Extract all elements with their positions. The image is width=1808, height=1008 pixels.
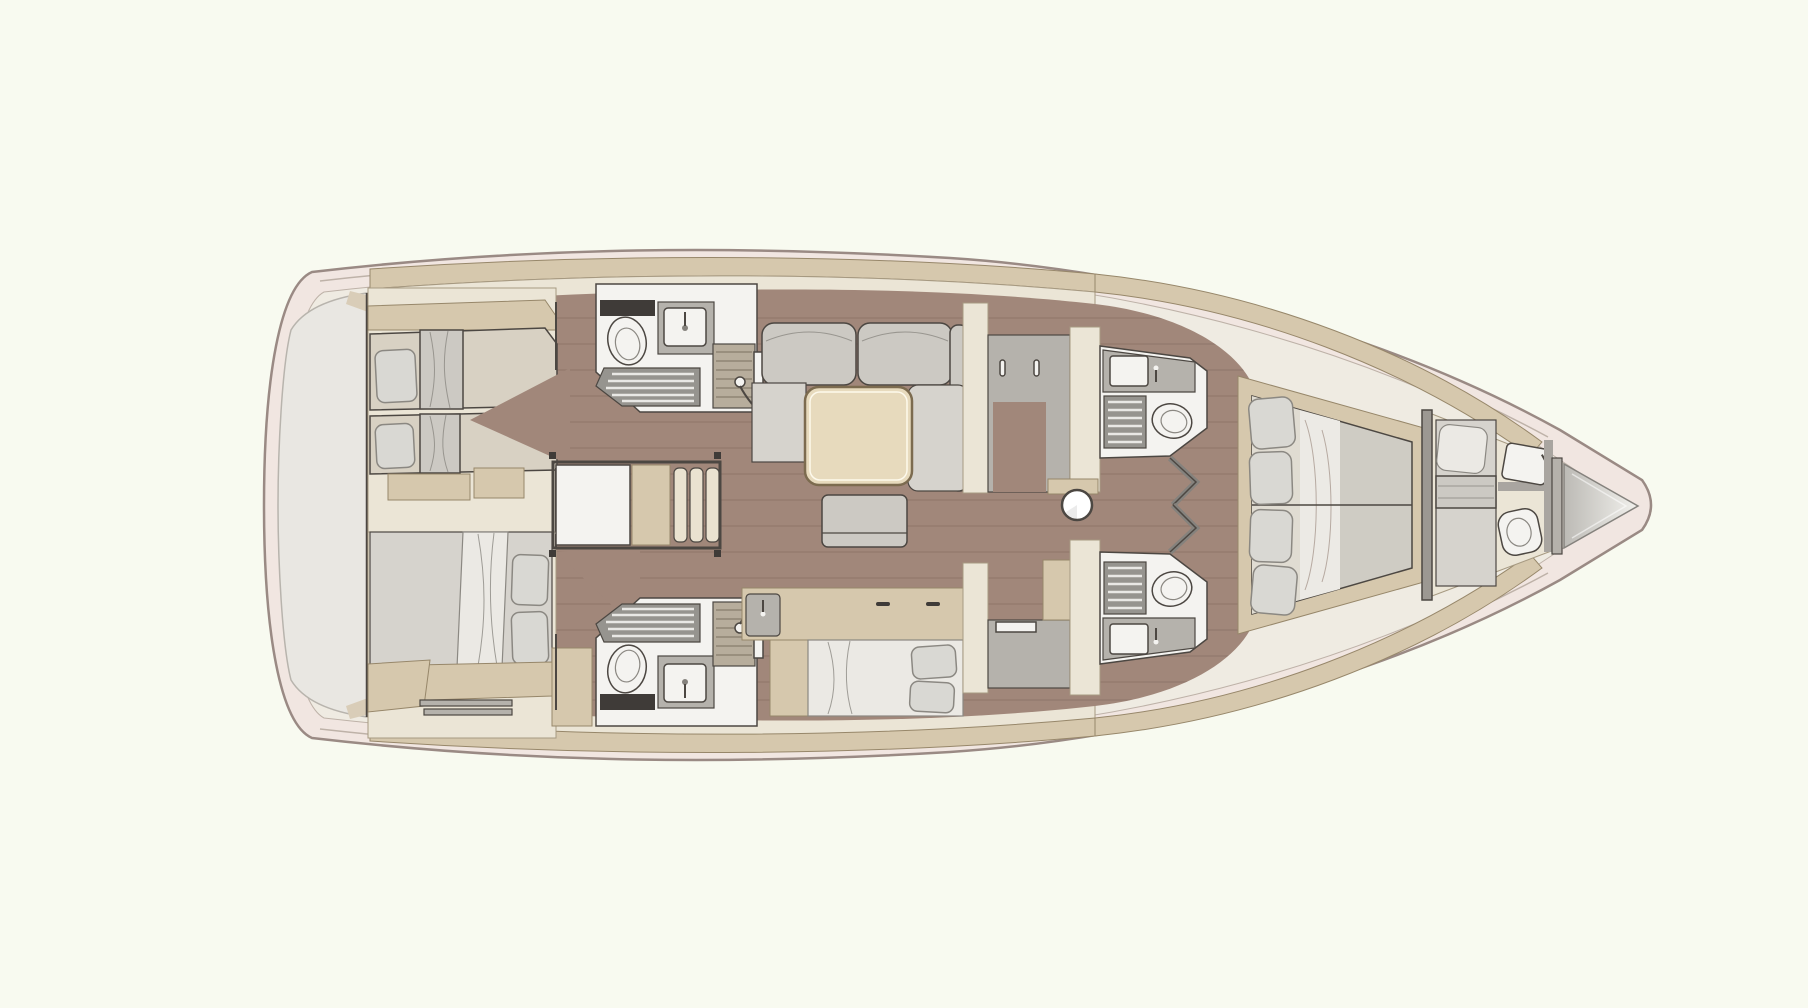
aft-head-port bbox=[596, 284, 757, 412]
step bbox=[690, 468, 703, 542]
yacht-floor-plan-page bbox=[0, 0, 1808, 1008]
shower-grate bbox=[1104, 396, 1146, 448]
pillow bbox=[1249, 509, 1293, 562]
handle bbox=[926, 602, 940, 606]
drawer-front bbox=[420, 700, 512, 706]
yacht-floor-plan bbox=[0, 0, 1808, 1008]
cabinet-kneehole bbox=[993, 402, 1046, 492]
handle bbox=[1034, 360, 1039, 376]
forepeak-bulkhead bbox=[1552, 458, 1562, 554]
bulkhead-panel bbox=[1070, 327, 1100, 492]
bulkhead-panel bbox=[963, 563, 988, 693]
duvet-drape bbox=[457, 532, 508, 668]
sofa-chaise bbox=[908, 385, 968, 491]
handle bbox=[1000, 360, 1005, 376]
pillow bbox=[1248, 396, 1296, 450]
duvet bbox=[420, 330, 463, 409]
pillow bbox=[511, 611, 549, 664]
shower-grate bbox=[1104, 562, 1146, 614]
counter-sink bbox=[996, 622, 1036, 632]
pillow bbox=[909, 681, 955, 713]
pillow bbox=[511, 554, 549, 605]
ottoman bbox=[822, 495, 907, 547]
starboard-settee bbox=[742, 588, 963, 716]
pillow bbox=[1249, 451, 1293, 504]
hinge-fitting bbox=[714, 550, 721, 557]
pillow bbox=[1250, 564, 1298, 616]
washbasin bbox=[1110, 356, 1148, 386]
side-platform bbox=[632, 465, 670, 545]
hinge-fitting bbox=[714, 452, 721, 459]
vanity-shelf bbox=[600, 300, 655, 316]
handle bbox=[876, 602, 890, 606]
blanket bbox=[1436, 476, 1496, 508]
drawer-front bbox=[424, 709, 512, 715]
pillow bbox=[375, 349, 418, 403]
transom-garage bbox=[278, 291, 374, 719]
washbasin bbox=[1110, 624, 1148, 654]
step bbox=[706, 468, 719, 542]
mast-post bbox=[1062, 490, 1092, 520]
aft-cabin-port bbox=[368, 288, 570, 532]
pillow bbox=[375, 423, 415, 469]
vanity-shelf bbox=[600, 694, 655, 710]
hinge-fitting bbox=[549, 452, 556, 459]
sofa-seat bbox=[752, 383, 806, 462]
landing bbox=[556, 465, 630, 545]
locker bbox=[1043, 560, 1070, 620]
step-bench bbox=[388, 474, 470, 500]
duvet bbox=[420, 414, 460, 473]
pillow bbox=[911, 645, 957, 680]
settee-end bbox=[770, 640, 808, 716]
bulkhead-panel bbox=[1070, 540, 1100, 695]
step bbox=[674, 468, 687, 542]
washbasin bbox=[1501, 442, 1551, 485]
garage-area bbox=[278, 293, 367, 717]
hinge-fitting bbox=[549, 550, 556, 557]
bulkhead-wall bbox=[1422, 410, 1432, 600]
companionway bbox=[549, 452, 721, 557]
aft-head-starboard bbox=[596, 598, 757, 726]
pillow bbox=[1436, 424, 1489, 475]
dining-table bbox=[805, 387, 912, 485]
headboard-locker bbox=[552, 648, 592, 726]
step-bench bbox=[474, 468, 524, 498]
bulkhead-panel bbox=[963, 303, 988, 493]
